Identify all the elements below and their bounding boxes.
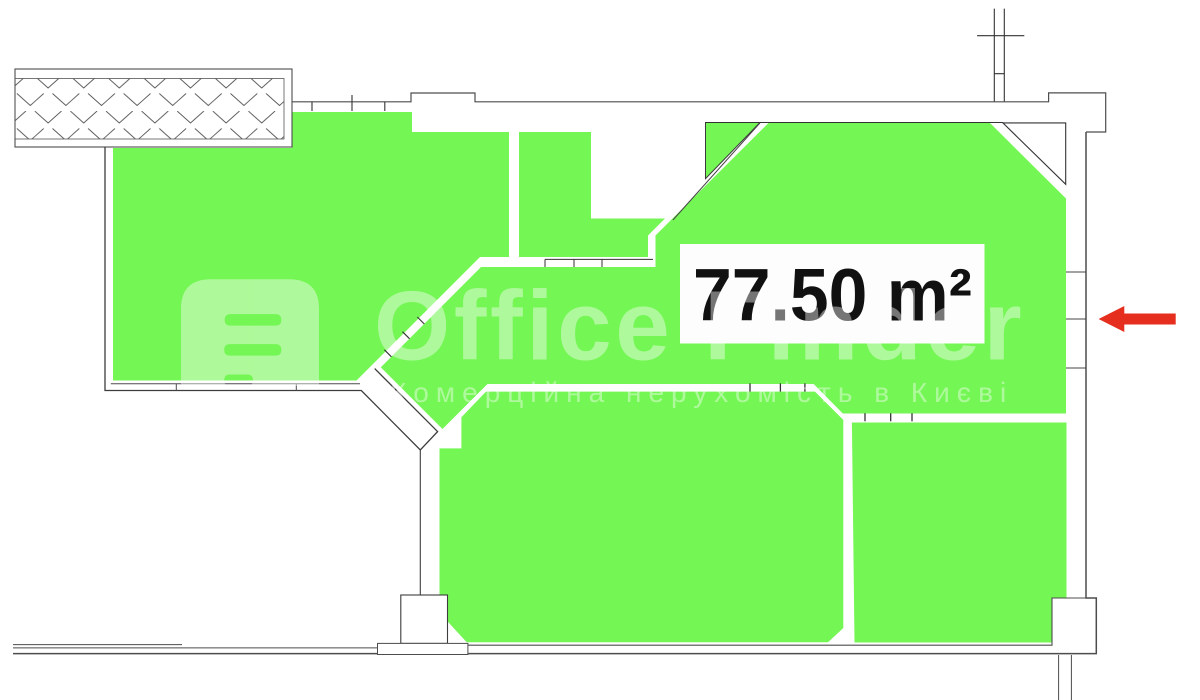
svg-text:Office Finder: Office Finder [374, 271, 1025, 381]
svg-text:Комерційна нерухомість в Києві: Комерційна нерухомість в Києві [390, 377, 1013, 408]
